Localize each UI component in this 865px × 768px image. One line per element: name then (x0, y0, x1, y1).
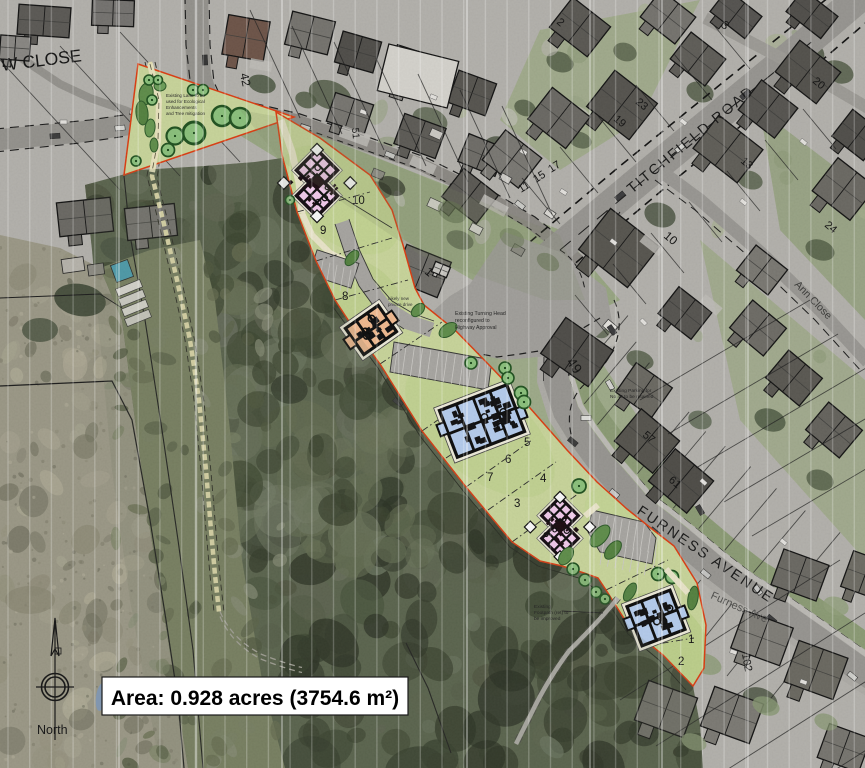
svg-text:North: North (37, 723, 68, 737)
svg-text:Area: 0.928 acres (3754.6 m²): Area: 0.928 acres (3754.6 m²) (111, 687, 399, 710)
